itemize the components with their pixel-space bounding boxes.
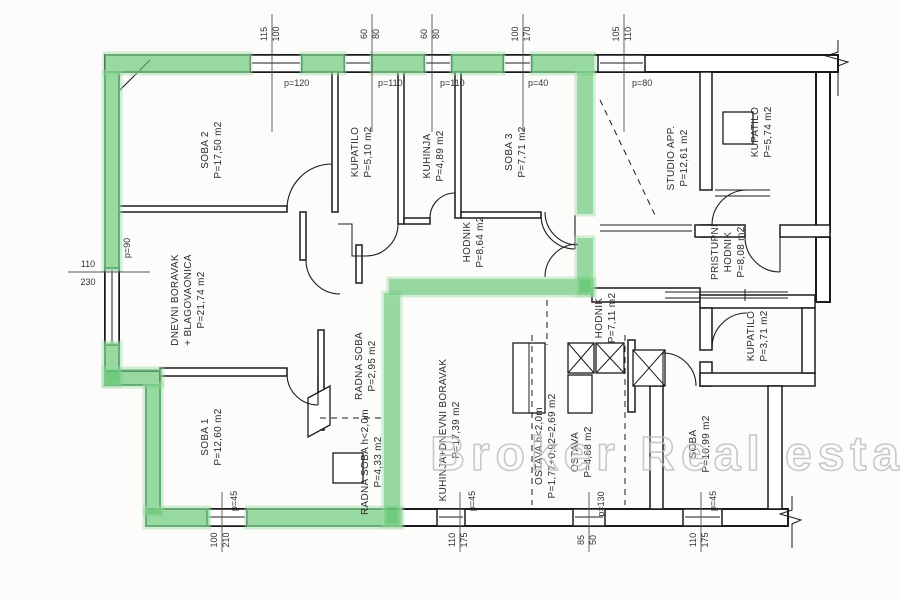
room-area: P=8,08 m2 [736, 226, 747, 277]
parapet-label: p=45 [708, 491, 718, 511]
watermark-text: Broker Real estate [430, 428, 900, 481]
dim-value: 100 [510, 26, 520, 41]
parapet-label: p=110 [378, 78, 403, 88]
parapet-label: p=40 [528, 78, 548, 88]
room-area: P=8,64 m2 [475, 216, 486, 267]
dim-value: 85 [576, 535, 586, 545]
dim-value: 230 [80, 277, 95, 287]
window-left [105, 268, 119, 345]
room-name: RADNA SOBA h<2,0m [360, 409, 371, 515]
room-area: P=12,60 m2 [213, 408, 224, 465]
parapet-label: p=130 [596, 491, 606, 516]
room-name: STUDIO APP. [666, 126, 677, 191]
window-top-1 [250, 55, 302, 72]
dim-value: 80 [431, 29, 441, 39]
room-label-kupatilo-371: KUPATILO P=3,71 m2 [746, 310, 770, 361]
dim-value: 80 [371, 29, 381, 39]
window-top-5 [598, 55, 645, 72]
room-label-soba3: SOBA 3 P=7,71 m2 [504, 126, 528, 177]
room-area: P=2,95 m2 [367, 340, 378, 391]
room-label-kupatilo-574: KUPATILO P=5,74 m2 [750, 106, 774, 157]
room-label-hodnik-864: HODNIK P=8,64 m2 [462, 216, 486, 267]
dim-value: 50 [588, 535, 598, 545]
room-label-pristupni-hodnik: PRISTUPNI HODNIK P=8,08 m2 [710, 224, 747, 280]
stair-parallelogram [308, 386, 330, 437]
room-name: SOBA 1 [200, 418, 211, 456]
parapet-label: p=90 [122, 238, 132, 258]
room-name: KUPATILO [350, 127, 361, 177]
room-area: P=21,74 m2 [196, 271, 207, 328]
dim-value: 175 [700, 532, 710, 547]
dim-value: 115 [259, 27, 269, 41]
storage-box [568, 375, 592, 413]
room-name: KUHINJA [422, 134, 433, 179]
window-top-4 [503, 55, 532, 72]
room-label-dnevni-boravak: DNEVNI BORAVAK + BLAGOVAONICA P=21,74 m2 [170, 254, 207, 346]
room-area: P=3,71 m2 [759, 310, 770, 361]
shaft-box-1 [568, 343, 594, 373]
room-name: KUPATILO [750, 107, 761, 157]
room-name: SOBA 3 [504, 133, 515, 171]
dim-value: 60 [359, 29, 369, 39]
dim-value: 110 [623, 27, 633, 41]
floor-plan-sheet: 115 100 p=120 60 80 p=110 60 80 p=110 10… [0, 0, 900, 600]
room-name: SOBA 2 [200, 131, 211, 169]
room-area: P=12,61 m2 [679, 129, 690, 186]
room-name2: + BLAGOVAONICA [183, 254, 194, 346]
dim-value: 210 [221, 532, 231, 547]
dim-value: 170 [522, 26, 532, 41]
room-area: P=7,71 m2 [517, 126, 528, 177]
room-label-radna-soba-h2: RADNA SOBA h<2,0m P=4,33 m2 [360, 409, 384, 515]
room-name: KUPATILO [746, 311, 757, 361]
window-top-2 [344, 55, 372, 72]
dim-value: 100 [209, 532, 219, 547]
room-label-studio-app: STUDIO APP. P=12,61 m2 [666, 126, 690, 191]
room-area: P=7,11 m2 [607, 293, 618, 344]
room-area: P=4,89 m2 [435, 130, 446, 181]
parapet-label: p=45 [229, 491, 239, 511]
room-area: P=5,74 m2 [763, 106, 774, 157]
shaft-box-2 [596, 343, 624, 373]
desk-box [333, 453, 363, 483]
dim-value: 110 [81, 259, 95, 269]
room-label-radna-soba: RADNA SOBA P=2,95 m2 [354, 332, 378, 400]
dim-value: 175 [459, 532, 469, 547]
window-top-3 [424, 55, 452, 72]
room-area: P=17,50 m2 [213, 121, 224, 178]
closet-shelf [513, 343, 545, 413]
dim-value: 60 [419, 29, 429, 39]
room-name: HODNIK [594, 298, 605, 339]
parapet-label: p=80 [632, 78, 652, 88]
dim-value: 105 [611, 26, 621, 41]
room-name: PRISTUPNI [710, 224, 721, 280]
dim-value: 100 [271, 26, 281, 41]
parapet-label: p=110 [440, 78, 465, 88]
room-name: RADNA SOBA [354, 332, 365, 400]
room-area: P=5,10 m2 [363, 126, 374, 177]
room-label-soba1: SOBA 1 P=12,60 m2 [200, 408, 224, 465]
floor-plan-drawing: 115 100 p=120 60 80 p=110 60 80 p=110 10… [0, 0, 900, 600]
parapet-label: p=120 [284, 78, 309, 88]
shaft-box-3 [633, 350, 665, 386]
parapet-label: p=45 [467, 491, 477, 511]
room-label-kupatilo-510: KUPATILO P=5,10 m2 [350, 126, 374, 177]
rail-lines [600, 190, 788, 301]
dim-value: 110 [447, 533, 457, 547]
washing-machine [723, 112, 753, 144]
room-area: P=4,33 m2 [373, 436, 384, 487]
room-name: DNEVNI BORAVAK [170, 254, 181, 346]
room-name2: HODNIK [723, 232, 734, 273]
room-label-kuhinja: KUHINJA P=4,89 m2 [422, 130, 446, 181]
room-label-soba2: SOBA 2 P=17,50 m2 [200, 121, 224, 178]
room-name: HODNIK [462, 222, 473, 263]
dim-value: 110 [688, 533, 698, 547]
window-bottom-2 [437, 509, 465, 526]
window-bottom-1 [207, 509, 247, 526]
